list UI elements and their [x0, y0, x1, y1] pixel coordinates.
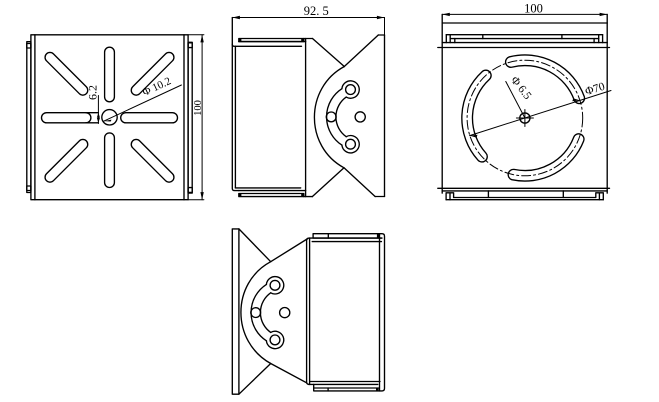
svg-text:Φ 10.2: Φ 10.2 — [141, 75, 173, 99]
svg-text:92. 5: 92. 5 — [304, 4, 329, 18]
svg-text:Φ70: Φ70 — [584, 81, 607, 99]
svg-text:100: 100 — [524, 1, 543, 15]
svg-text:6.2: 6.2 — [86, 85, 100, 100]
svg-text:Φ 6.5: Φ 6.5 — [508, 74, 533, 102]
svg-text:100: 100 — [193, 100, 204, 116]
